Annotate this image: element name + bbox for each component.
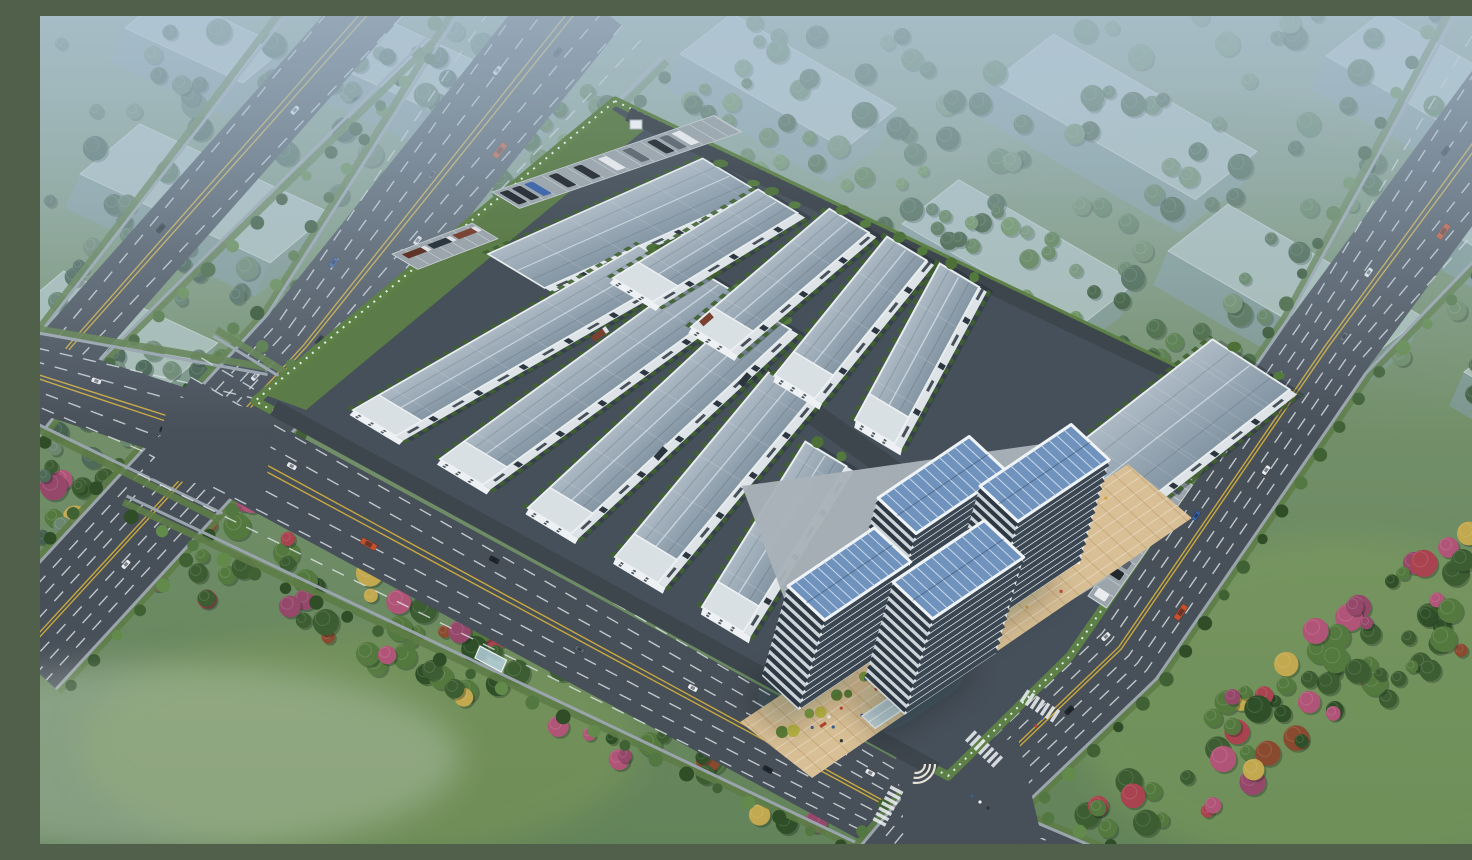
street-tree: [1237, 560, 1250, 573]
tree-crown: [1303, 672, 1312, 681]
street-tree: [44, 532, 57, 545]
tree-crown: [365, 590, 373, 598]
tree-crown: [358, 644, 371, 657]
tree-crown: [1421, 608, 1431, 618]
street-tree: [742, 796, 755, 809]
tree-crown: [1348, 599, 1358, 609]
street-tree: [1072, 825, 1086, 839]
street-tree: [556, 709, 571, 724]
street-tree: [525, 696, 539, 710]
street-tree: [679, 767, 694, 782]
street-tree: [1257, 534, 1267, 544]
pedestrian: [1034, 724, 1037, 727]
tree-crown: [1225, 719, 1235, 729]
tree-crown: [1413, 552, 1428, 567]
tree-crown: [190, 565, 201, 576]
tree-crown: [74, 482, 81, 489]
tree-crown: [1118, 770, 1133, 785]
tree-crown: [451, 622, 463, 634]
far-haze: [40, 16, 1472, 256]
tree-crown: [1403, 632, 1411, 640]
tree-crown: [220, 567, 230, 577]
street-tree: [89, 481, 103, 495]
tree-crown: [47, 510, 57, 520]
tree-crown: [1407, 661, 1414, 668]
pedestrian: [970, 794, 973, 797]
street-tree: [465, 669, 475, 679]
street-tree: [1313, 448, 1327, 462]
street-tree: [372, 625, 384, 637]
tree-crown: [1327, 707, 1335, 715]
pedestrian: [840, 707, 843, 710]
street-tree: [88, 654, 100, 666]
street-tree: [772, 810, 786, 824]
tree-crown: [1296, 735, 1303, 742]
pedestrian: [832, 725, 835, 728]
street-tree: [1062, 767, 1076, 781]
street-tree: [1159, 672, 1173, 686]
pedestrian: [1104, 497, 1107, 500]
street-tree: [217, 552, 232, 567]
street-tree: [341, 611, 353, 623]
street-tree: [187, 540, 199, 552]
street-tree: [495, 682, 508, 695]
tree-crown: [1386, 575, 1394, 583]
tree-crown: [1361, 617, 1368, 624]
street-tree: [1087, 744, 1100, 757]
street-tree: [112, 630, 122, 640]
tree-crown: [1305, 620, 1319, 634]
tree-crown: [1091, 801, 1100, 810]
tree-crown: [282, 533, 290, 541]
scene-canvas: [40, 16, 1472, 844]
tree-crown: [40, 531, 44, 539]
tree-crown: [1206, 710, 1216, 720]
street-tree: [712, 783, 722, 793]
tree-crown: [97, 470, 108, 481]
street-tree: [248, 567, 261, 580]
plaza-tree: [787, 724, 800, 737]
tree-crown: [439, 626, 446, 633]
tree-crown: [1278, 678, 1288, 688]
tree-crown: [1440, 539, 1451, 550]
tree-crown: [1348, 661, 1362, 675]
street-tree: [225, 503, 239, 517]
pedestrian: [978, 800, 981, 803]
tree-crown: [315, 611, 329, 625]
tree-crown: [1459, 523, 1472, 536]
tree-crown: [1440, 600, 1454, 614]
street-tree: [619, 740, 630, 751]
street-tree: [134, 604, 146, 616]
tree-crown: [1276, 706, 1285, 715]
street-tree: [156, 525, 168, 537]
street-tree: [309, 595, 323, 609]
pedestrian: [986, 806, 989, 809]
street-tree: [156, 578, 170, 592]
tree-crown: [46, 461, 53, 468]
tree-crown: [1431, 594, 1439, 602]
tree-crown: [1433, 628, 1447, 642]
plaza-tree: [844, 690, 852, 698]
plaza-tree: [815, 706, 827, 718]
tree-crown: [447, 680, 458, 691]
tree-crown: [281, 597, 293, 609]
tree-crown: [1239, 687, 1246, 694]
tree-crown: [226, 515, 241, 530]
aerial-rendering: [40, 16, 1472, 844]
street-tree: [1219, 590, 1230, 601]
tree-crown: [281, 557, 290, 566]
pedestrian: [811, 726, 814, 729]
street-tree: [1136, 697, 1150, 711]
tree-crown: [1258, 743, 1272, 757]
tree-crown: [1123, 785, 1137, 799]
tree-crown: [1241, 746, 1249, 754]
street-tree: [124, 509, 139, 524]
pedestrian: [1059, 590, 1062, 593]
street-tree: [1039, 792, 1051, 804]
street-tree: [1295, 476, 1308, 489]
pedestrian: [1040, 716, 1043, 719]
tree-crown: [40, 470, 46, 477]
tree-crown: [1300, 693, 1312, 705]
tree-crown: [1100, 820, 1111, 831]
tree-crown: [424, 662, 435, 673]
street-tree: [1113, 722, 1123, 732]
tree-crown: [199, 591, 209, 601]
street-tree: [588, 725, 601, 738]
pedestrian: [840, 739, 843, 742]
tree-crown: [1145, 783, 1155, 793]
tree-crown: [1213, 748, 1227, 762]
tree-crown: [507, 661, 521, 675]
street-tree: [1275, 504, 1288, 517]
street-tree: [403, 640, 414, 651]
tree-crown: [1319, 674, 1331, 686]
street-tree: [1198, 616, 1212, 630]
pedestrian: [827, 715, 830, 718]
tree-crown: [1206, 798, 1215, 807]
tree-crown: [1245, 760, 1257, 772]
tree-crown: [1136, 812, 1150, 826]
tree-crown: [197, 550, 205, 558]
tree-crown: [1181, 771, 1189, 779]
tree-crown: [380, 647, 390, 657]
tree-crown: [1226, 690, 1235, 699]
tree-crown: [1422, 661, 1434, 673]
tree-crown: [1276, 654, 1289, 667]
street-tree: [856, 825, 868, 837]
tree-crown: [1375, 669, 1382, 676]
street-tree: [67, 507, 80, 520]
tree-crown: [1454, 551, 1466, 563]
street-tree: [433, 653, 447, 667]
street-tree: [649, 753, 663, 767]
tree-crown: [1392, 672, 1401, 681]
street-tree: [1179, 645, 1192, 658]
tree-crown: [1325, 648, 1340, 663]
tree-crown: [1398, 568, 1406, 576]
street-tree: [1042, 812, 1054, 824]
street-tree: [280, 583, 291, 594]
street-tree: [179, 553, 193, 567]
